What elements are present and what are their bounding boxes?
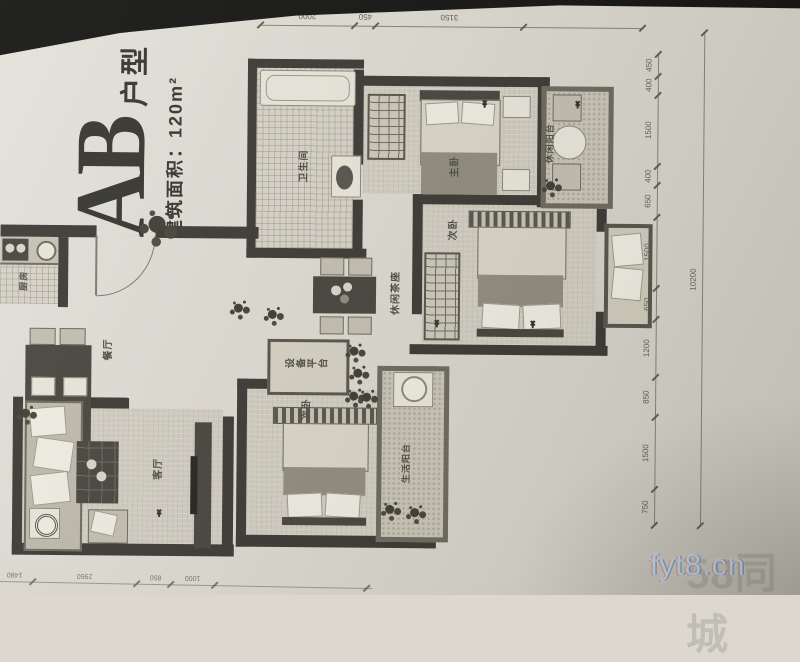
room-label-bedroom2: 次卧 xyxy=(444,218,459,240)
pillow xyxy=(522,303,561,330)
dim-label: 1500 xyxy=(641,444,650,462)
dim-label: 3150 xyxy=(441,13,459,22)
dim-label: 1000 xyxy=(185,574,201,581)
pillow xyxy=(425,101,459,125)
dim-label: 400 xyxy=(644,79,653,92)
lamp-symbol-icon xyxy=(577,102,579,109)
bedroom2-bed-frame xyxy=(477,329,564,338)
dim-chain-line xyxy=(0,581,372,589)
room-label-balcony-top: 休闲阳台 xyxy=(543,123,556,163)
wardrobe xyxy=(424,252,461,340)
bedroom2-bed xyxy=(477,227,566,280)
nightstand xyxy=(502,169,530,191)
dim-overall-label: 10200 xyxy=(689,268,698,290)
room-label-master: 主卧 xyxy=(446,155,461,177)
lamp-symbol-icon xyxy=(436,320,438,327)
pillow xyxy=(461,101,496,126)
nightstand xyxy=(503,96,531,118)
dim-tick xyxy=(650,521,657,528)
dim-label: 650 xyxy=(642,297,651,310)
dim-label: 1480 xyxy=(7,571,23,578)
pillow xyxy=(481,303,520,330)
dim-label: 1500 xyxy=(644,122,653,140)
bay-cushion xyxy=(611,233,644,268)
dim-tick xyxy=(639,24,646,31)
dim-label: 450 xyxy=(644,58,653,71)
plant-icon xyxy=(546,181,555,190)
dim-label: 850 xyxy=(150,573,162,580)
dim-label: 400 xyxy=(644,169,653,182)
watermark-site: fyt8.cn xyxy=(650,549,745,583)
dim-label: 1200 xyxy=(642,339,651,357)
bottom-dimension-chain: 148029508501000 xyxy=(0,0,426,599)
balcony-chair xyxy=(552,163,581,190)
dim-label: 750 xyxy=(641,500,650,513)
bay-cushion xyxy=(611,267,644,302)
lamp-symbol-icon xyxy=(532,321,534,328)
lamp-symbol-icon xyxy=(484,101,486,108)
dim-label: 850 xyxy=(642,390,651,403)
dim-overall-line xyxy=(700,33,705,526)
wall xyxy=(410,344,608,356)
dim-label: 1500 xyxy=(643,244,652,262)
dim-tick xyxy=(696,522,703,529)
dim-label: 2950 xyxy=(77,572,93,579)
dim-label: 650 xyxy=(643,194,652,207)
balcony-table xyxy=(552,125,586,159)
